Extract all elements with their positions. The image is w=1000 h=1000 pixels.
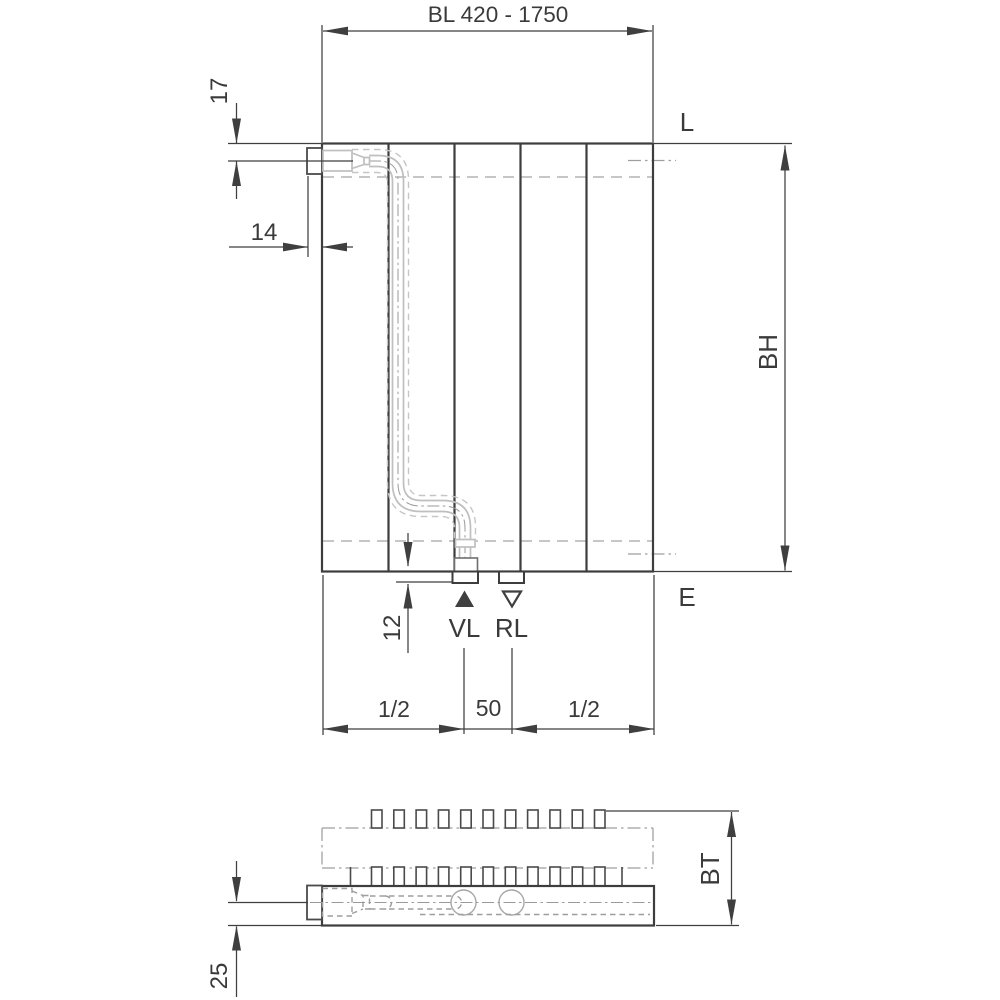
radiator-outline (322, 144, 653, 572)
bl-dimension-text: BL 420 - 1750 (428, 2, 569, 27)
valve-taper-bottom (352, 165, 364, 169)
dim12-arrow-up (404, 584, 413, 609)
dim-bl: BL 420 - 1750 (322, 2, 653, 142)
bottom-connections (453, 540, 525, 584)
return-flow-icon (503, 592, 521, 607)
dim-bh: BH (653, 144, 792, 572)
dim-25: 25 (206, 861, 321, 997)
dim-bottom-chain: 1/2 50 1/2 (323, 575, 654, 735)
fin (550, 867, 561, 886)
bl-arrow-right (627, 27, 652, 36)
dim25-arrow-up (232, 926, 241, 951)
chain-arrow-vl (439, 725, 464, 734)
fin (528, 810, 539, 828)
fin (505, 810, 516, 828)
bh-dimension-text: BH (753, 334, 783, 370)
channel-bar (322, 886, 654, 926)
dim-14: 14 (229, 176, 353, 257)
fin (372, 810, 383, 828)
fin (528, 867, 539, 886)
label-e: E (678, 582, 695, 612)
fins-bottom (351, 867, 623, 886)
rl-label: RL (495, 613, 528, 643)
fin (483, 810, 494, 828)
fin (595, 867, 606, 886)
chain-text-50: 50 (476, 695, 502, 721)
vl-label: VL (449, 613, 481, 643)
fin (394, 810, 405, 828)
dim14-arrow-right (283, 243, 308, 252)
pipe-sleeve-outer (352, 150, 476, 541)
vl-fitting-upper (455, 558, 478, 572)
bottom-view: BT 25 (206, 810, 739, 997)
fin (438, 810, 449, 828)
chain-text-half-right: 1/2 (568, 696, 600, 722)
fin (572, 810, 583, 828)
bt-arrow-down (727, 900, 736, 925)
pipe-collar (456, 540, 476, 548)
flow-labels: VL RL (449, 591, 529, 644)
chain-arrow-far-right (629, 725, 654, 734)
valve-taper-top (352, 153, 364, 158)
valve-neck (364, 158, 370, 165)
chain-arrow-rl (512, 725, 537, 734)
bt-arrow-up (727, 812, 736, 837)
dim25-text: 25 (206, 963, 233, 990)
fin (550, 810, 561, 828)
drawing-canvas: BL 420 - 1750 17 14 BH (0, 0, 1000, 1000)
fin (572, 867, 583, 886)
fins-top (372, 810, 606, 828)
rl-connection-stub (499, 572, 524, 584)
supply-flow-icon (455, 591, 474, 608)
fin (461, 867, 472, 886)
fin (438, 867, 449, 886)
chain-arrow-far-left (323, 725, 348, 734)
radiator-dimension-drawing: BL 420 - 1750 17 14 BH (0, 0, 1000, 1000)
convector-outline (322, 828, 653, 868)
label-l: L (680, 107, 694, 137)
dim14-arrow-left (322, 243, 347, 252)
fin (483, 867, 494, 886)
vl-connection-stub (453, 572, 479, 584)
bh-arrow-down (781, 546, 790, 571)
dim12-text: 12 (379, 615, 406, 642)
dim17-text: 17 (206, 78, 233, 105)
dim-17: 17 (206, 78, 353, 199)
bl-arrow-left (323, 27, 348, 36)
fin (416, 810, 427, 828)
fin (595, 810, 606, 828)
dim-12: 12 (379, 533, 452, 653)
fin (394, 867, 405, 886)
fin (505, 867, 516, 886)
fin (416, 867, 427, 886)
dim12-arrow-down (404, 542, 413, 567)
dim14-text: 14 (251, 219, 278, 246)
fin (372, 867, 383, 886)
chain-text-half-left: 1/2 (378, 696, 410, 722)
bt-dimension-text: BT (695, 852, 725, 885)
dim17-arrow-down (232, 119, 241, 144)
dim17-arrow-up (232, 161, 241, 186)
fin (461, 810, 472, 828)
pipe-centerline (369, 161, 465, 570)
valve-pipe-assembly (352, 150, 476, 571)
bh-arrow-up (781, 146, 790, 171)
front-view: BL 420 - 1750 17 14 BH (206, 2, 792, 735)
dim25-arrow-down (232, 877, 241, 902)
